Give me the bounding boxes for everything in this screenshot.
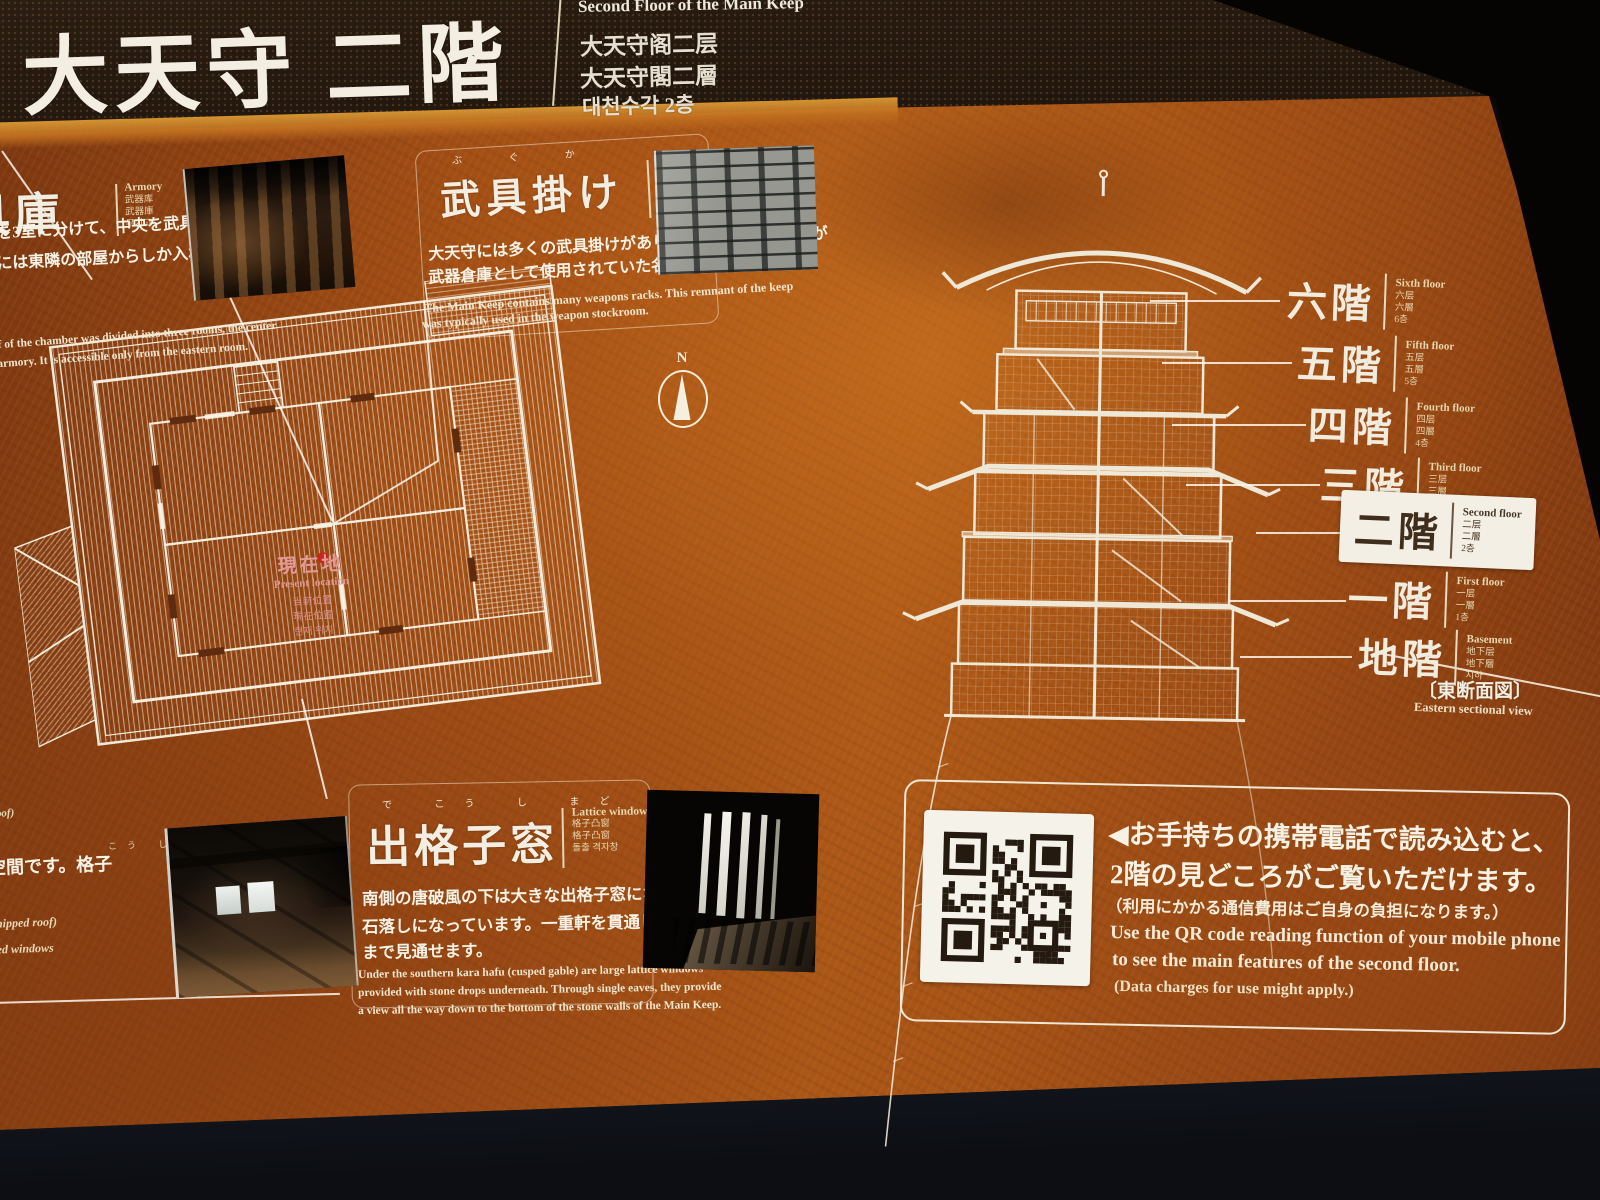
page-title: 大天守 二階 xyxy=(20,0,511,133)
armory-photo xyxy=(183,155,356,301)
floor-label-5: 五階 Fifth floor 五层 五層 5층 xyxy=(1296,331,1455,394)
floor-divider xyxy=(1404,397,1408,453)
floor-translations: Sixth floor 六层 六層 6층 xyxy=(1394,277,1446,328)
sectional-view-caption-jp: 〔東断面図〕 xyxy=(1418,676,1532,703)
attic-window xyxy=(247,881,275,913)
compass-n-label: N xyxy=(677,350,688,367)
window-light-slit xyxy=(716,812,731,916)
floor-divider xyxy=(1383,274,1387,330)
floor-translations: First floor 一层 一層 1층 xyxy=(1455,575,1505,626)
gable-fragment-2: 空間です。格子 xyxy=(0,850,113,880)
window-light-slit xyxy=(698,813,711,913)
weapon-racks-heading: 武具掛け xyxy=(439,159,626,227)
floor-label-2-highlighted: 二階 Second floor 二层 二層 2층 xyxy=(1339,490,1537,570)
floor-translations: Fourth floor 四层 四層 4층 xyxy=(1415,401,1475,452)
floor-leader-line xyxy=(1172,424,1306,426)
floor-divider xyxy=(1393,336,1397,392)
floor-jp: 四階 xyxy=(1307,393,1397,454)
floor-label-1: 一階 First floor 一层 一層 1층 xyxy=(1347,567,1505,630)
gable-fragment-4: latticed windows xyxy=(0,941,54,959)
attic-photo xyxy=(164,816,358,998)
floor-leader-line xyxy=(1150,300,1280,302)
floor-leader-line xyxy=(1228,600,1346,602)
qr-code xyxy=(920,810,1094,986)
floor-leader-line xyxy=(1186,484,1320,486)
floor-leader-line xyxy=(1256,532,1340,534)
floor-divider xyxy=(1450,503,1454,559)
attic-shadow xyxy=(279,846,353,911)
compass: N xyxy=(650,350,714,434)
sign-panel-photo: 大天守 二階 Second Floor of the Main Keep 大天守… xyxy=(0,0,1600,1200)
floor-translations: Fifth floor 五层 五層 5층 xyxy=(1404,339,1454,390)
weapon-racks-photo xyxy=(654,145,818,275)
attic-window xyxy=(216,885,242,915)
page-title-ko: 대천수각 2층 xyxy=(582,89,695,122)
floor-jp: 一階 xyxy=(1347,567,1437,628)
window-light-slit xyxy=(755,815,767,919)
qr-text-jp-2: 2階の見どころがご覧いただけます。 xyxy=(1110,852,1553,899)
floor-jp: 六階 xyxy=(1286,269,1376,330)
floor-translations: Second floor 二层 二層 2층 xyxy=(1461,506,1522,558)
present-location-marker: 現在地 Present location 当前位置 現在位置 현재 위치 xyxy=(250,547,374,640)
floor-divider xyxy=(1444,572,1448,628)
floor-label-6: 六階 Sixth floor 六层 六層 6층 xyxy=(1286,269,1446,332)
page-title-zh-tw: 大天守閣二層 xyxy=(580,56,719,94)
floor-leader-line xyxy=(1240,656,1352,658)
floor-jp: 二階 xyxy=(1353,497,1443,559)
floor-label-4: 四階 Fourth floor 四层 四層 4층 xyxy=(1307,393,1475,457)
lattice-heading: 出格子窓 xyxy=(365,808,558,875)
lattice-body-jp-3: まで見通せます。 xyxy=(362,937,493,963)
window-light-slit xyxy=(736,812,750,918)
floor-leader-line xyxy=(1162,362,1292,364)
floor-shadows xyxy=(673,919,819,967)
floor-jp: 五階 xyxy=(1296,331,1386,392)
qr-text-jp-1: ◀お手持ちの携帯電話で読み込むと、 xyxy=(1108,812,1560,859)
window-light-slit xyxy=(770,819,780,919)
lattice-labels: Lattice window 格子凸窗 格子凸窗 돌출 격자창 xyxy=(572,804,649,855)
lattice-window-photo xyxy=(643,790,820,972)
